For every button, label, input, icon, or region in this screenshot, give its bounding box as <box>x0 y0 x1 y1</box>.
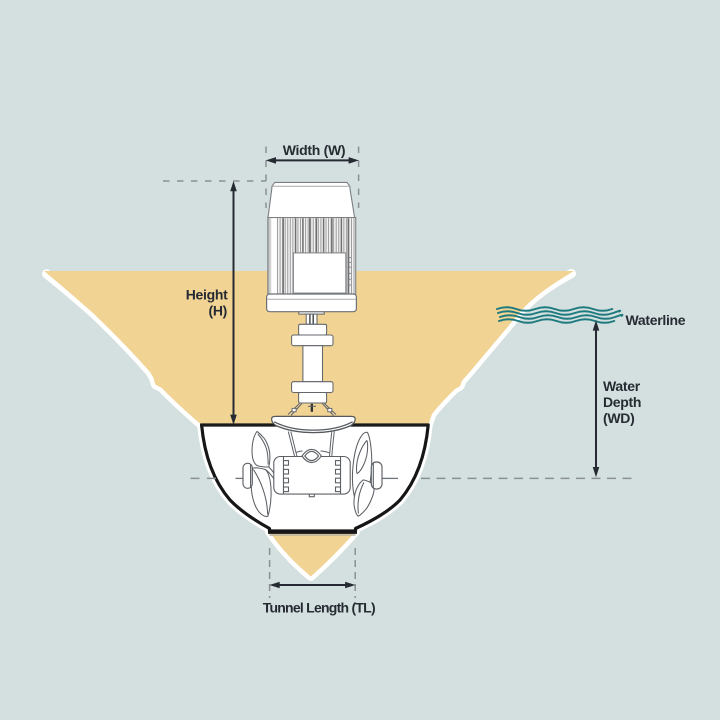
svg-text:(WD): (WD) <box>603 410 634 426</box>
svg-text:(H): (H) <box>208 303 227 319</box>
svg-text:Waterline: Waterline <box>626 312 686 328</box>
svg-text:Width (W): Width (W) <box>283 142 345 158</box>
svg-text:Height: Height <box>186 287 228 303</box>
svg-text:Water: Water <box>603 378 641 394</box>
svg-text:Tunnel Length (TL): Tunnel Length (TL) <box>263 600 375 616</box>
svg-text:Depth: Depth <box>603 394 641 410</box>
